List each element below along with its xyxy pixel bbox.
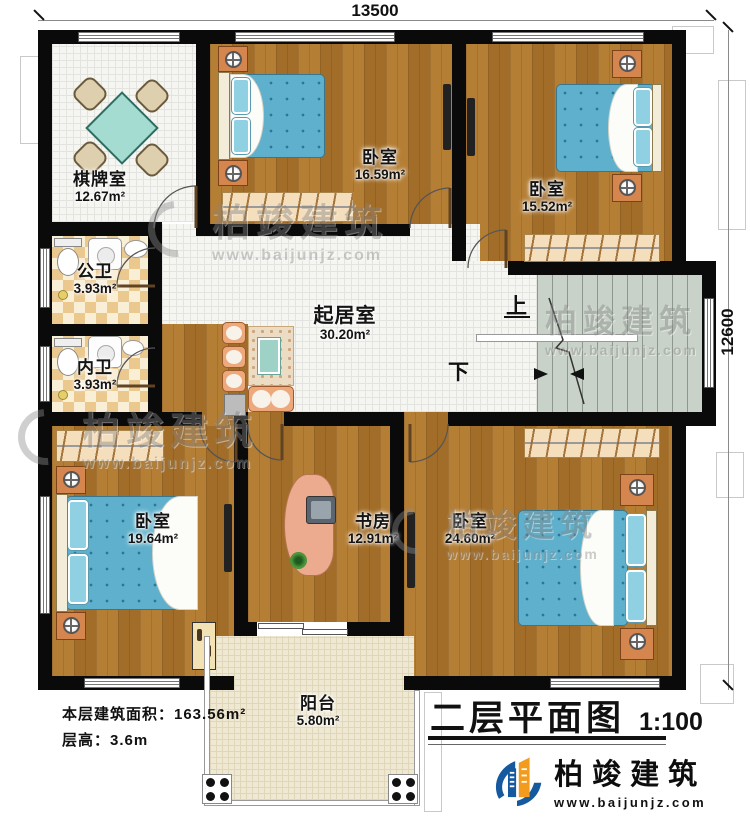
column-post	[202, 774, 232, 804]
brand-website: www.baijunjz.com	[554, 795, 706, 810]
room-label-bedroom2: 卧室 15.52m²	[492, 180, 602, 214]
nightstand	[620, 474, 654, 506]
column-post	[388, 774, 418, 804]
sofa	[248, 386, 294, 412]
plant-icon	[290, 552, 307, 569]
room-name: 阳台	[258, 694, 378, 713]
slab-outline	[718, 80, 746, 230]
wardrobe	[524, 428, 660, 458]
drawing-title: 二层平面图 1:100	[430, 690, 703, 741]
room-area: 5.80m²	[258, 713, 378, 728]
cushion	[226, 326, 242, 340]
room-area: 3.93m²	[45, 281, 145, 296]
headboard	[652, 84, 662, 172]
wall	[234, 412, 248, 626]
cushion	[252, 390, 271, 408]
wall	[196, 30, 210, 236]
brand-name: 柏竣建筑	[554, 751, 706, 793]
room-area: 16.59m²	[325, 167, 435, 182]
column-dot	[406, 778, 415, 787]
room-name: 起居室	[270, 305, 420, 327]
wall	[508, 261, 716, 275]
window	[235, 32, 395, 42]
table-lamp-icon	[225, 165, 242, 182]
sink-icon	[122, 340, 144, 356]
armchair	[222, 370, 246, 392]
room-area: 24.60m²	[415, 531, 525, 546]
room-area: 30.20m²	[270, 327, 420, 342]
table-lamp-icon	[225, 51, 242, 68]
room-label-chess: 棋牌室 12.67m²	[40, 170, 160, 204]
room-area: 3.93m²	[45, 377, 145, 392]
window	[84, 678, 180, 688]
cushion	[226, 374, 242, 388]
armchair	[222, 346, 246, 368]
room-name: 卧室	[325, 148, 435, 167]
room-label-private-bath: 内卫 3.93m²	[45, 358, 145, 392]
window	[550, 678, 660, 688]
column-dot	[220, 778, 229, 787]
wall	[234, 622, 257, 636]
room-label-living: 起居室 30.20m²	[270, 305, 420, 343]
headboard	[646, 510, 657, 626]
table-lamp-icon	[63, 617, 80, 634]
window	[492, 32, 644, 42]
nightstand	[218, 46, 248, 72]
nightstand	[620, 628, 654, 660]
tv	[224, 504, 232, 572]
drawing-scale: 1:100	[639, 708, 703, 737]
nightstand	[612, 50, 642, 78]
wall	[38, 222, 150, 236]
stair-railing	[476, 334, 638, 342]
stairs-up-underline	[504, 316, 530, 318]
column-dot	[406, 792, 415, 801]
toilet-icon	[54, 338, 82, 347]
pillow	[626, 514, 646, 566]
slab-outline	[716, 452, 744, 498]
room-label-balcony: 阳台 5.80m²	[258, 694, 378, 728]
floor-height-note: 层高：3.6m	[62, 728, 246, 754]
wall	[38, 412, 202, 426]
headboard	[218, 72, 230, 160]
room-label-bedroom3: 卧室 19.64m²	[98, 512, 208, 546]
room-name: 内卫	[45, 358, 145, 377]
nightstand	[218, 160, 248, 186]
column-dot	[220, 792, 229, 801]
pillow	[626, 570, 646, 622]
table-lamp-icon	[619, 55, 636, 72]
pillow	[232, 78, 250, 114]
floor-area-note: 本层建筑面积：163.56m²	[62, 702, 246, 728]
room-name: 卧室	[98, 512, 208, 531]
armchair	[222, 322, 246, 344]
room-name: 棋牌室	[40, 170, 160, 189]
nightstand	[56, 466, 86, 494]
cushion	[271, 390, 290, 408]
wardrobe	[56, 430, 164, 462]
dimension-width: 13500	[305, 1, 445, 21]
dimension-height: 12600	[718, 292, 738, 372]
column-dot	[392, 792, 401, 801]
dimension-tick	[33, 9, 44, 20]
pillow	[634, 88, 652, 126]
sink-icon	[124, 240, 148, 258]
room-label-bedroom4: 卧室 24.60m²	[415, 512, 525, 546]
table-lamp-icon	[629, 633, 646, 650]
wall	[672, 30, 686, 261]
wall	[148, 222, 162, 426]
title-underline-thick	[428, 736, 666, 740]
sliding-door	[258, 623, 304, 629]
brand-logo-icon	[490, 750, 544, 810]
column-dot	[392, 778, 401, 787]
wall	[284, 412, 390, 426]
cushion	[226, 350, 242, 364]
nightstand	[56, 612, 86, 640]
pillow	[232, 118, 250, 154]
room-area: 19.64m²	[98, 531, 208, 546]
coffee-table	[258, 338, 280, 374]
room-area: 15.52m²	[492, 199, 602, 214]
table-lamp-icon	[63, 471, 80, 488]
wardrobe	[222, 192, 354, 222]
pillow	[68, 500, 88, 550]
bottle	[197, 629, 202, 641]
floor-notes: 本层建筑面积：163.56m² 层高：3.6m	[62, 702, 246, 755]
wardrobe	[524, 234, 660, 262]
window	[78, 32, 180, 42]
bed-sheet	[580, 510, 614, 626]
column-dot	[206, 778, 215, 787]
wall	[672, 426, 686, 690]
wall	[452, 30, 466, 261]
table-lamp-icon	[619, 179, 636, 196]
room-area: 12.67m²	[40, 189, 160, 204]
room-area: 12.91m²	[318, 531, 428, 546]
pillow	[68, 554, 88, 604]
wall	[347, 622, 404, 636]
room-name: 公卫	[45, 262, 145, 281]
stairs-down-label: 下	[448, 356, 469, 386]
logo-tower-orange	[519, 758, 530, 798]
table-lamp-icon	[629, 479, 646, 496]
drawing-title-text: 二层平面图	[430, 690, 625, 741]
dimension-tick	[705, 9, 716, 20]
room-label-bedroom1: 卧室 16.59m²	[325, 148, 435, 182]
brand-logo: 柏竣建筑 www.baijunjz.com	[490, 750, 706, 810]
tv	[467, 98, 475, 156]
room-name: 卧室	[415, 512, 525, 531]
title-underline-thin	[428, 744, 666, 745]
wall	[448, 412, 672, 426]
room-name: 卧室	[492, 180, 602, 199]
wall	[210, 224, 410, 236]
room-label-public-bath: 公卫 3.93m²	[45, 262, 145, 296]
tv	[443, 84, 451, 150]
staircase-floor	[537, 275, 702, 412]
floor-plan: 上 下	[0, 0, 750, 823]
column-dot	[206, 792, 215, 801]
toilet-icon	[54, 238, 82, 247]
headboard	[56, 494, 68, 612]
window	[40, 496, 50, 614]
room-label-study: 书房 12.91m²	[318, 512, 428, 546]
pillow	[634, 128, 652, 166]
side-table	[224, 394, 246, 416]
wall	[38, 324, 148, 336]
nightstand	[612, 174, 642, 202]
sliding-door	[302, 629, 348, 635]
room-name: 书房	[318, 512, 428, 531]
window	[704, 298, 714, 388]
